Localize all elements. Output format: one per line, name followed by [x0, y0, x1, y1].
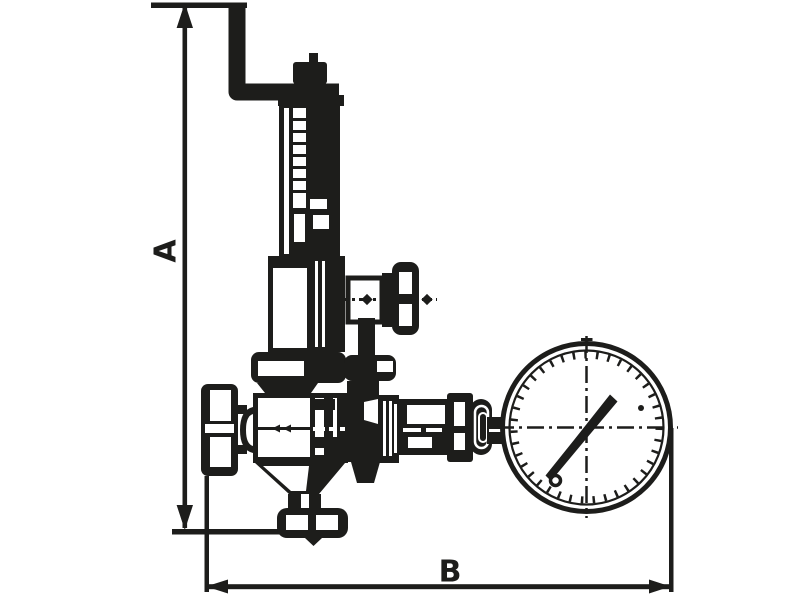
tube-highlight: [284, 108, 289, 254]
cap-centerline-slot: [205, 424, 234, 433]
thread-tick: [293, 142, 306, 145]
centerline-dash: [329, 427, 336, 431]
thread-tick: [293, 130, 306, 133]
flange-skirt: [257, 383, 318, 393]
dimension-a-line: [183, 8, 188, 528]
stem-column: [358, 318, 375, 356]
extension-line-bottom: [172, 529, 280, 535]
thread-tick: [293, 190, 306, 193]
nut-rib: [383, 401, 386, 456]
centerline-dash: [313, 427, 325, 431]
valve-technical-drawing: A B: [0, 0, 800, 598]
dimension-a-label: A: [149, 239, 184, 263]
thread-tick: [293, 118, 306, 121]
centerline-end-tick: [581, 338, 593, 341]
nut-window: [454, 433, 465, 450]
centerline-dash: [340, 427, 345, 431]
extension-line-left: [205, 476, 210, 592]
housing-collar: [278, 95, 344, 106]
tube-highlight-lower: [294, 214, 305, 242]
bell-front-face: [273, 268, 307, 348]
bell-edge-line: [322, 261, 325, 347]
extension-line-right: [669, 428, 674, 592]
thread-tick: [293, 166, 306, 169]
cap-panel: [210, 437, 231, 467]
dimension-b-label: B: [439, 555, 462, 590]
bell-edge-line: [315, 261, 318, 347]
tube-detail: [310, 199, 327, 209]
nut-rib: [394, 404, 397, 453]
body-bridge: [313, 437, 347, 448]
block-face: [377, 361, 393, 372]
nut-window: [454, 402, 465, 426]
centerline-dash: [403, 428, 421, 432]
body-bridge: [313, 399, 335, 410]
stem-tip: [309, 53, 318, 63]
pipe-face: [407, 405, 445, 424]
stem-top-nut: [293, 62, 327, 84]
boss-highlight: [364, 399, 378, 424]
centerline-dash: [426, 428, 442, 432]
neck-slot: [301, 494, 309, 508]
flange-window: [316, 515, 338, 530]
dial-dot: [638, 405, 644, 411]
nut-rib: [389, 401, 392, 456]
flange-window: [286, 515, 308, 530]
wheel-window: [399, 272, 412, 294]
cap-panel: [210, 390, 231, 421]
flange-front-face: [258, 361, 304, 376]
tube-detail: [313, 215, 329, 229]
wheel-window: [399, 304, 412, 326]
thread-tick: [293, 178, 306, 181]
thread-tick: [293, 154, 306, 157]
pipe-face-lower: [408, 437, 432, 448]
